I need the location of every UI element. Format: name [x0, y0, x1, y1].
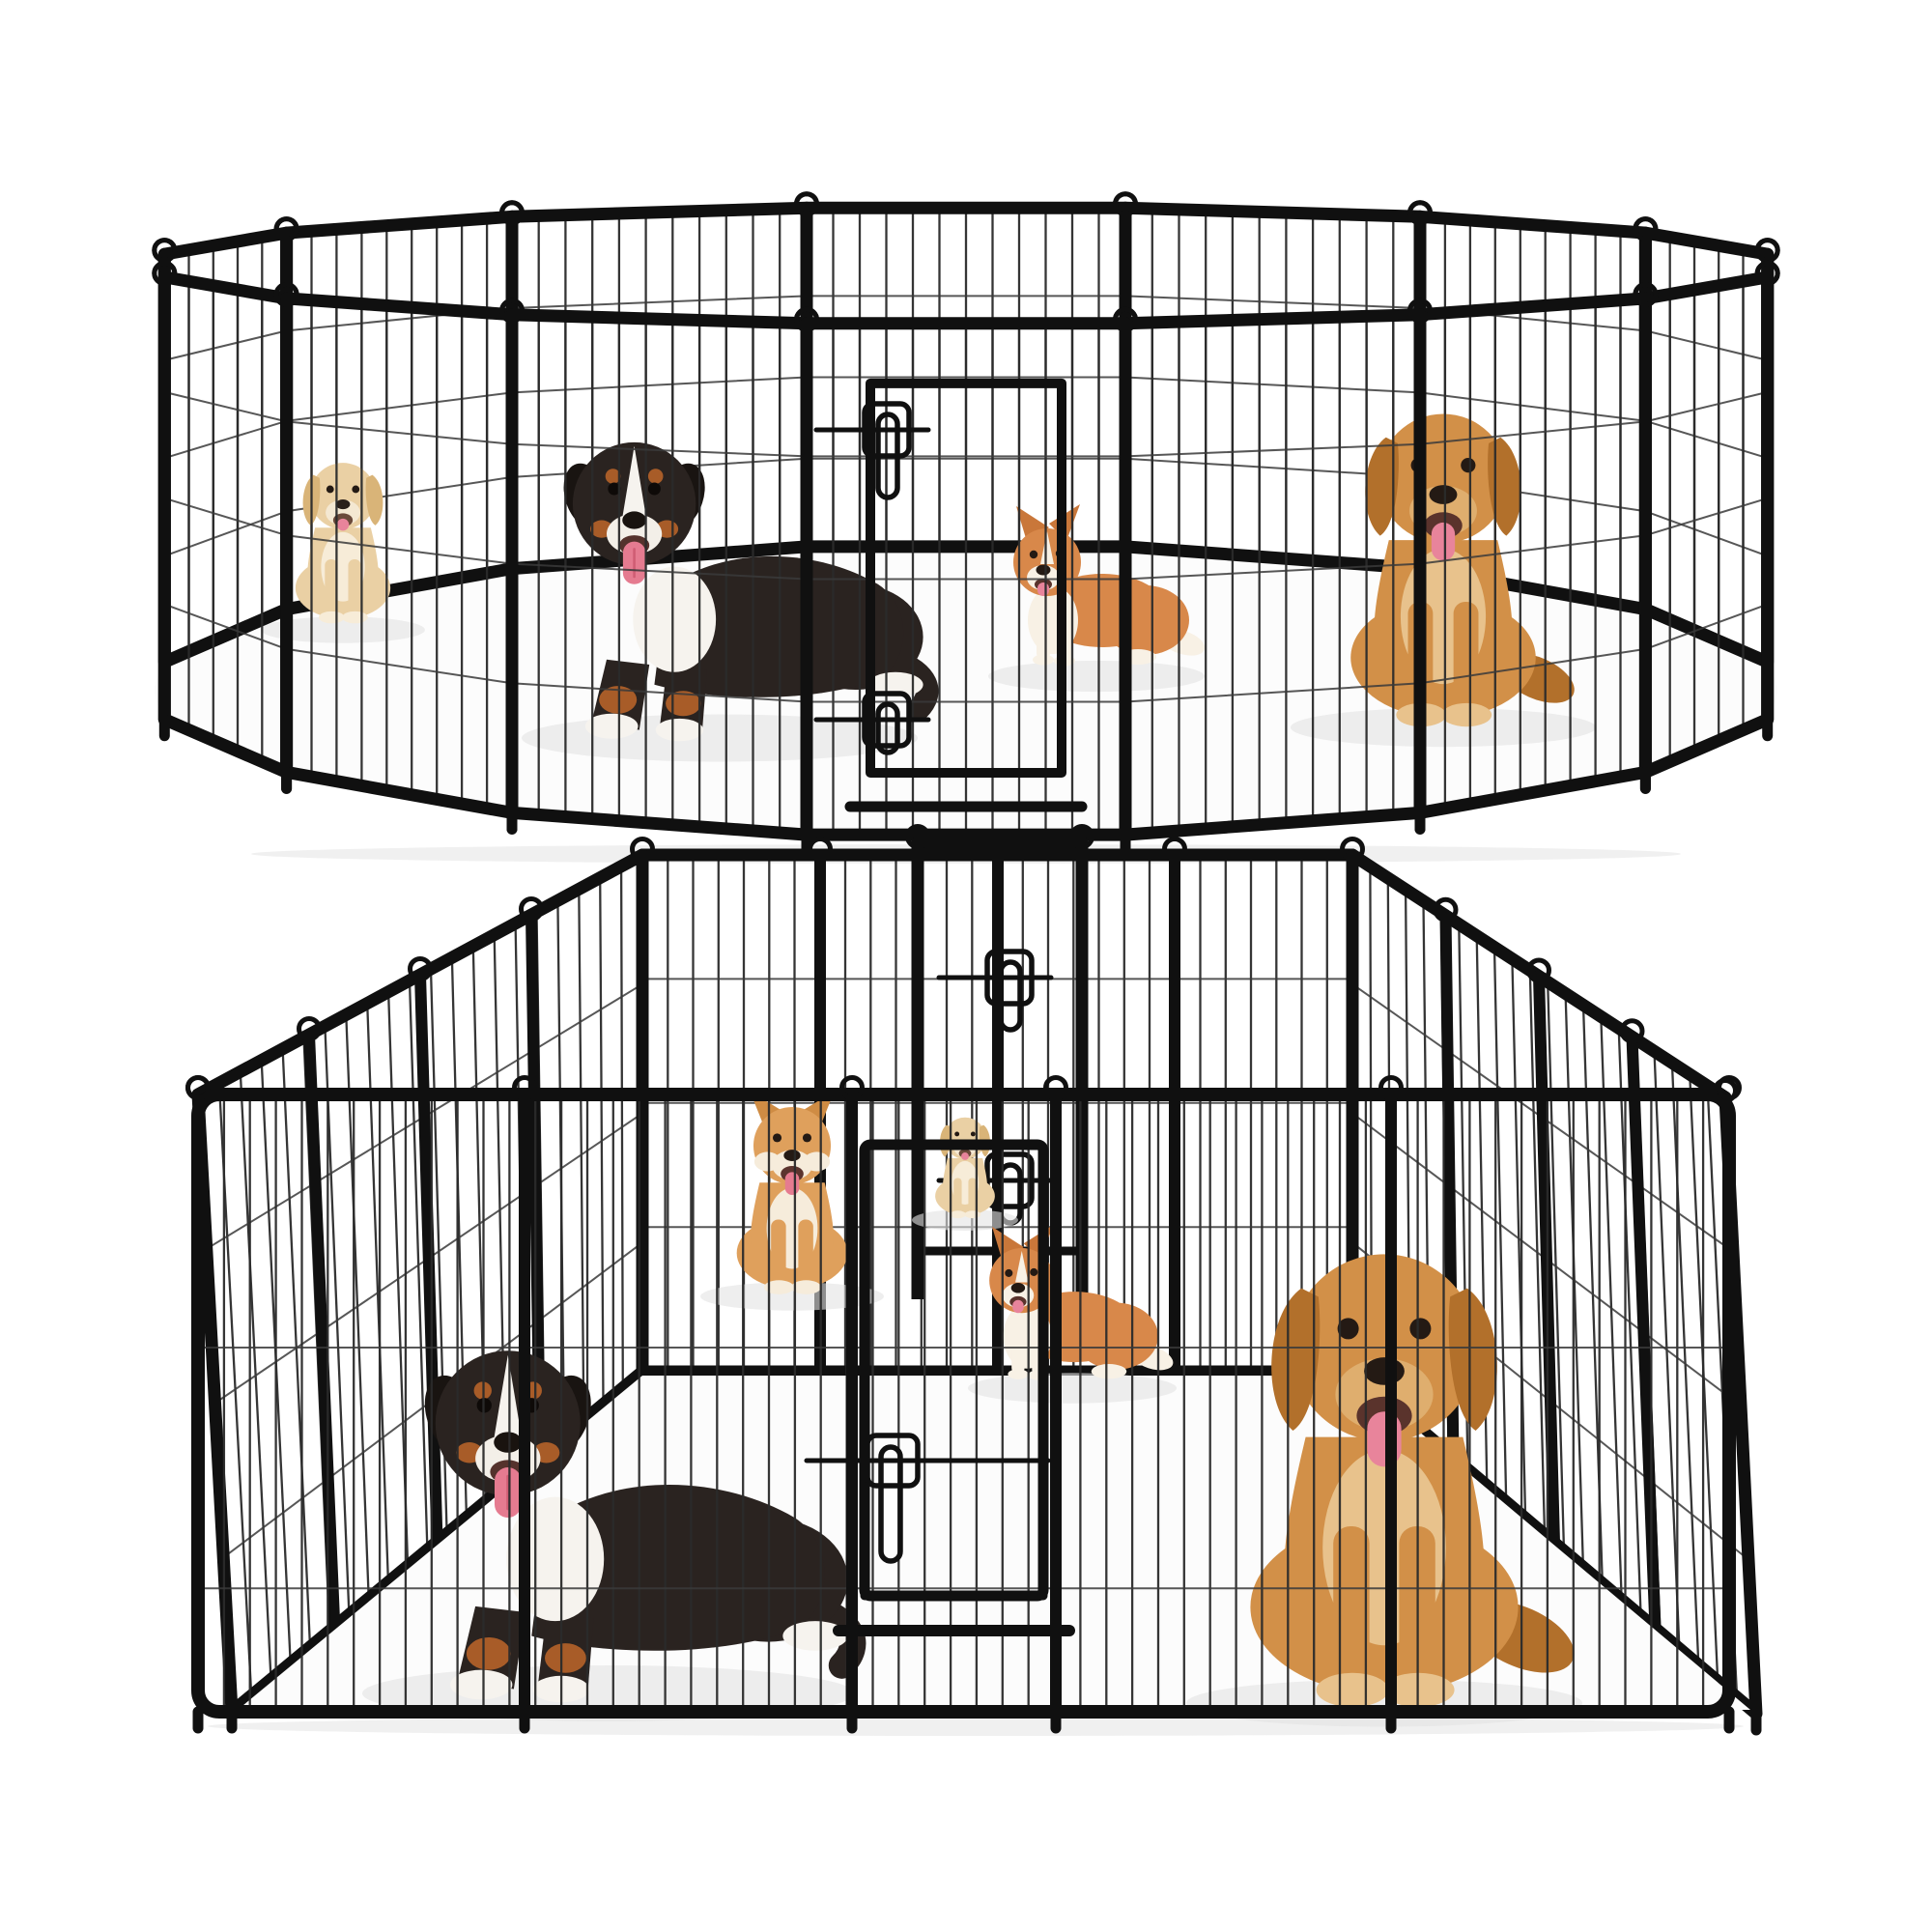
product-image-figure: Heavy-duty black metal dog playpen shown…	[0, 0, 1932, 1932]
top-golden-dog	[1350, 413, 1581, 726]
dog-playpen-product-photo: Heavy-duty black metal dog playpen shown…	[0, 0, 1932, 1932]
top-pen	[155, 194, 1777, 864]
bottom-shiba-dog	[737, 1092, 848, 1294]
bottom-pen	[188, 827, 1757, 1737]
